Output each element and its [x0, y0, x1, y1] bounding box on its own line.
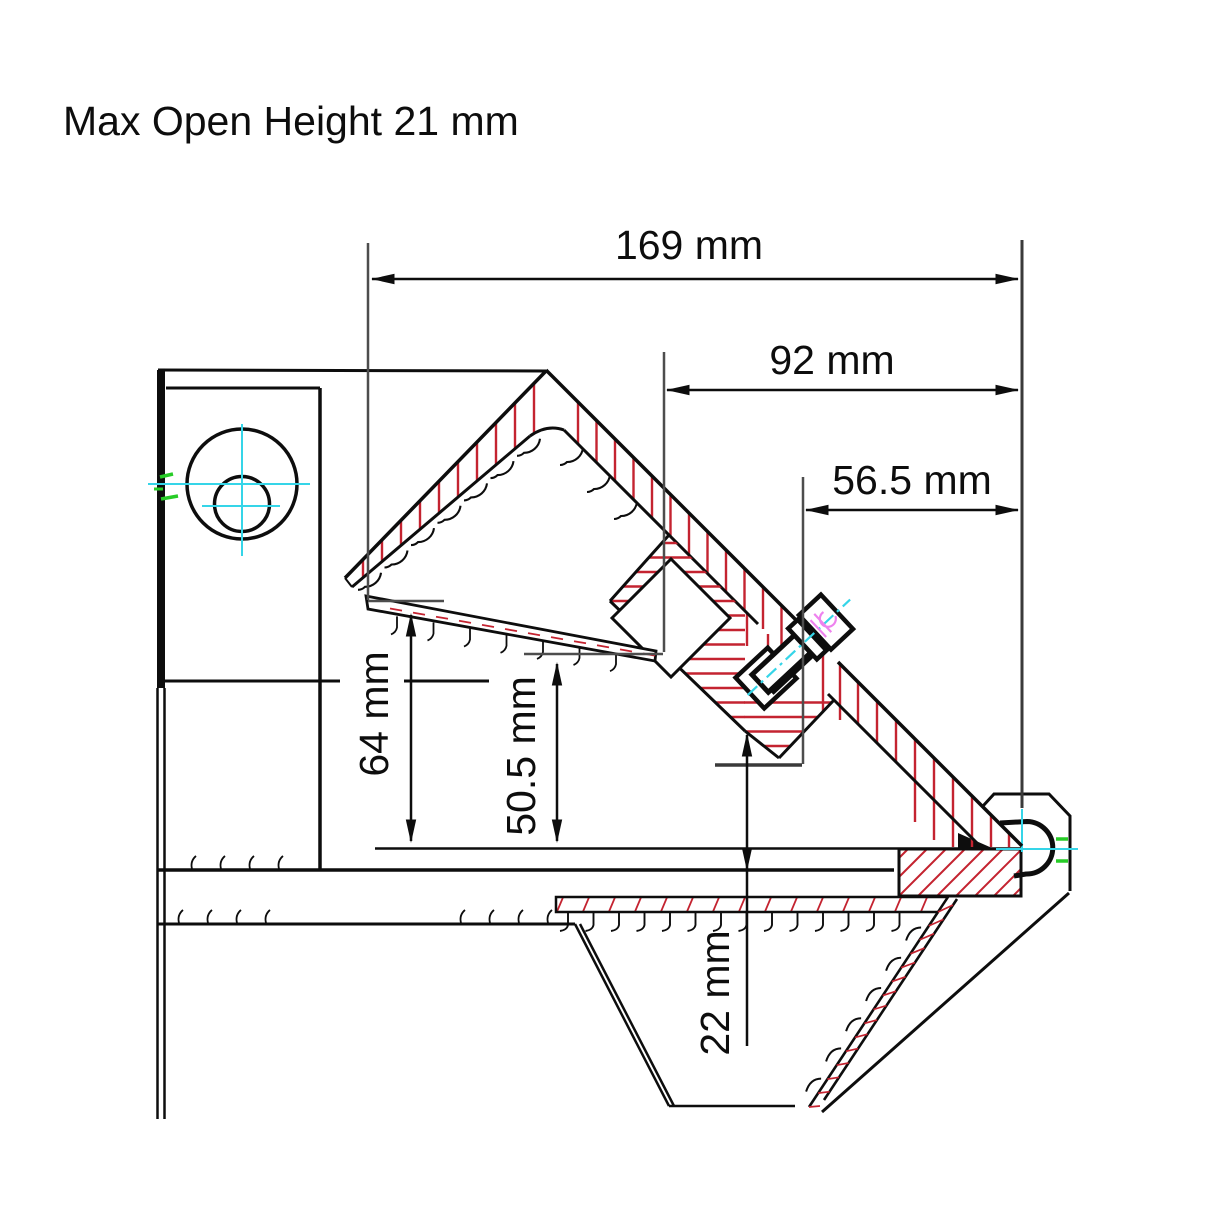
svg-text:22 mm: 22 mm	[692, 930, 738, 1055]
svg-text:92 mm: 92 mm	[769, 337, 894, 383]
svg-text:Max Open Height 21 mm: Max Open Height 21 mm	[63, 98, 519, 144]
svg-text:56.5 mm: 56.5 mm	[832, 457, 992, 503]
svg-text:64 mm: 64 mm	[351, 651, 397, 776]
svg-text:169 mm: 169 mm	[615, 222, 763, 268]
svg-text:50.5 mm: 50.5 mm	[498, 676, 544, 836]
